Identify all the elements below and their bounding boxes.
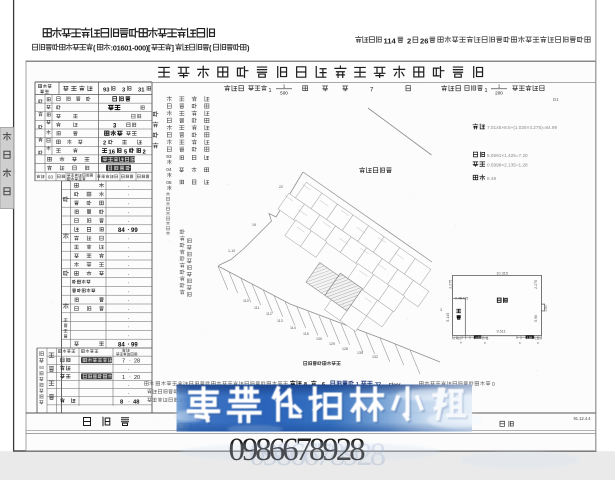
svg-text:93: 93	[48, 175, 54, 180]
svg-text:·: ·	[128, 219, 130, 225]
svg-text:1: 1	[485, 88, 488, 94]
svg-text:·: ·	[128, 193, 130, 199]
svg-text:129: 129	[329, 342, 335, 346]
svg-text:04: 04	[166, 167, 172, 173]
svg-text:20: 20	[134, 375, 140, 381]
svg-text:·: ·	[128, 201, 130, 207]
svg-text:200: 200	[495, 91, 503, 96]
svg-text:19: 19	[252, 223, 256, 227]
svg-text:·: ·	[128, 325, 130, 331]
svg-text:2.275: 2.275	[449, 280, 453, 289]
svg-text:1: 1	[498, 84, 501, 89]
svg-text:·: ·	[128, 333, 130, 339]
svg-text:·: ·	[128, 184, 130, 190]
svg-text:·: ·	[128, 281, 130, 287]
svg-text:99: 99	[131, 228, 138, 234]
svg-text:(.52): (.52)	[535, 336, 541, 340]
svg-text:·: ·	[128, 245, 130, 251]
svg-text:115: 115	[303, 332, 309, 336]
svg-text:7: 7	[122, 359, 125, 365]
svg-text:1-10: 1-10	[228, 249, 235, 253]
svg-text:1: 1	[283, 84, 286, 89]
svg-text:16: 16	[109, 149, 116, 155]
svg-text:·: ·	[128, 383, 130, 389]
svg-text:99: 99	[131, 342, 138, 348]
svg-text:1: 1	[122, 375, 125, 381]
svg-text:500: 500	[280, 91, 288, 96]
svg-text:05: 05	[166, 180, 172, 186]
svg-text:4.425: 4.425	[460, 297, 469, 301]
svg-text:10.315: 10.315	[496, 272, 508, 276]
svg-text:84: 84	[118, 342, 125, 348]
svg-text:7.0145×8.5+(1.025×3.275)=84.99: 7.0145×8.5+(1.025×3.275)=84.99	[487, 125, 558, 130]
svg-text:1.90: 1.90	[475, 335, 481, 339]
svg-text:91.12.4.4: 91.12.4.4	[574, 416, 592, 421]
svg-text:0.60: 0.60	[544, 305, 548, 312]
svg-text:5.90: 5.90	[534, 315, 538, 322]
svg-text:D1: D1	[553, 97, 559, 102]
svg-text:114: 114	[290, 326, 296, 330]
svg-text:·: ·	[129, 375, 131, 381]
svg-text:132: 132	[372, 355, 378, 359]
svg-text:·: ·	[128, 254, 130, 260]
svg-text:2: 2	[407, 37, 411, 46]
svg-text:2: 2	[143, 149, 146, 155]
svg-text:113: 113	[277, 319, 283, 323]
svg-text:·: ·	[128, 316, 130, 322]
svg-text::01601-000)[: :01601-000)[	[111, 44, 152, 53]
svg-text:139: 139	[357, 351, 363, 355]
svg-text:·: ·	[129, 358, 131, 364]
svg-text:·: ·	[128, 399, 130, 405]
svg-text:·: ·	[128, 210, 130, 216]
svg-text:48: 48	[133, 400, 140, 406]
svg-text:0.5998×2.135=1.28: 0.5998×2.135=1.28	[487, 163, 528, 168]
svg-text:128: 128	[342, 347, 348, 351]
svg-text:9.511: 9.511	[497, 330, 506, 334]
svg-text:·: ·	[128, 289, 130, 295]
svg-text:93: 93	[39, 365, 44, 370]
svg-text:1.58: 1.58	[527, 335, 533, 339]
svg-text:28: 28	[134, 359, 140, 365]
svg-text:31: 31	[138, 88, 145, 94]
svg-text:2.275: 2.275	[534, 280, 538, 289]
svg-text:84: 84	[118, 228, 125, 234]
svg-text:·: ·	[128, 263, 130, 269]
svg-text:·: ·	[128, 391, 130, 397]
svg-text:93: 93	[103, 88, 110, 94]
svg-text:·: ·	[128, 298, 130, 304]
svg-text:·: ·	[128, 307, 130, 313]
svg-text:114: 114	[384, 37, 397, 46]
svg-text:·: ·	[128, 227, 130, 234]
svg-text:8.48: 8.48	[487, 176, 497, 181]
svg-text:·: ·	[128, 237, 130, 243]
svg-text:5.145: 5.145	[446, 313, 450, 322]
svg-text:0: 0	[492, 382, 495, 388]
svg-text:93: 93	[166, 154, 172, 160]
svg-text:130: 130	[316, 337, 322, 341]
svg-text:·: ·	[128, 272, 130, 278]
svg-text:111: 111	[254, 306, 259, 310]
svg-text:3: 3	[440, 308, 442, 312]
svg-text:1: 1	[269, 88, 272, 94]
svg-text:110: 110	[243, 299, 249, 303]
svg-text:·: ·	[128, 341, 130, 348]
svg-text:112: 112	[266, 312, 272, 316]
svg-text:5.0591×1.425=7.20: 5.0591×1.425=7.20	[487, 153, 528, 158]
svg-text:26: 26	[420, 37, 428, 46]
svg-text:(.70): (.70)	[482, 336, 488, 340]
svg-text:2: 2	[103, 141, 106, 147]
svg-text:22: 22	[279, 185, 283, 189]
svg-text:·: ·	[128, 367, 130, 373]
